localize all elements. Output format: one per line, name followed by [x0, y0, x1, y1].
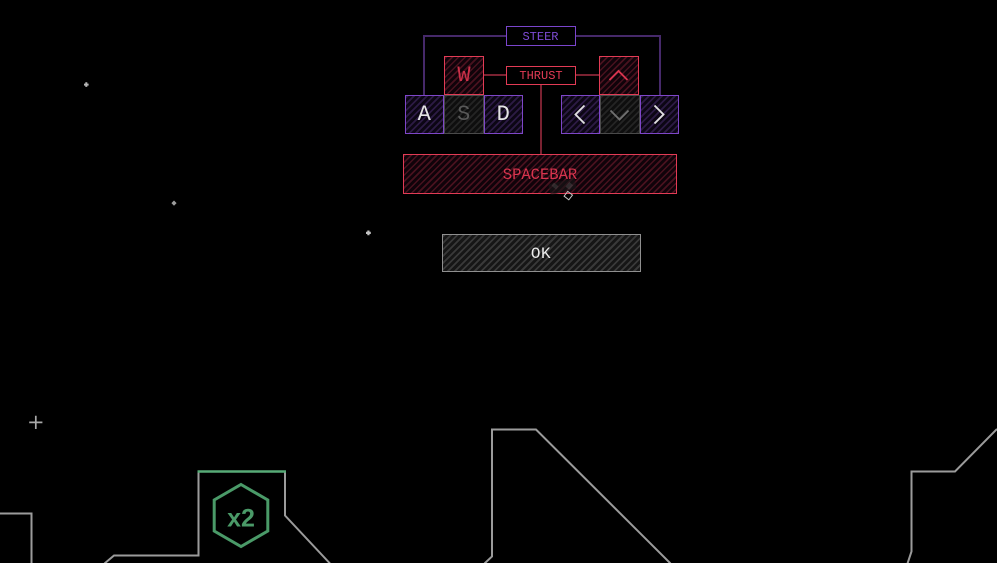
- svg-text:x2: x2: [227, 505, 255, 533]
